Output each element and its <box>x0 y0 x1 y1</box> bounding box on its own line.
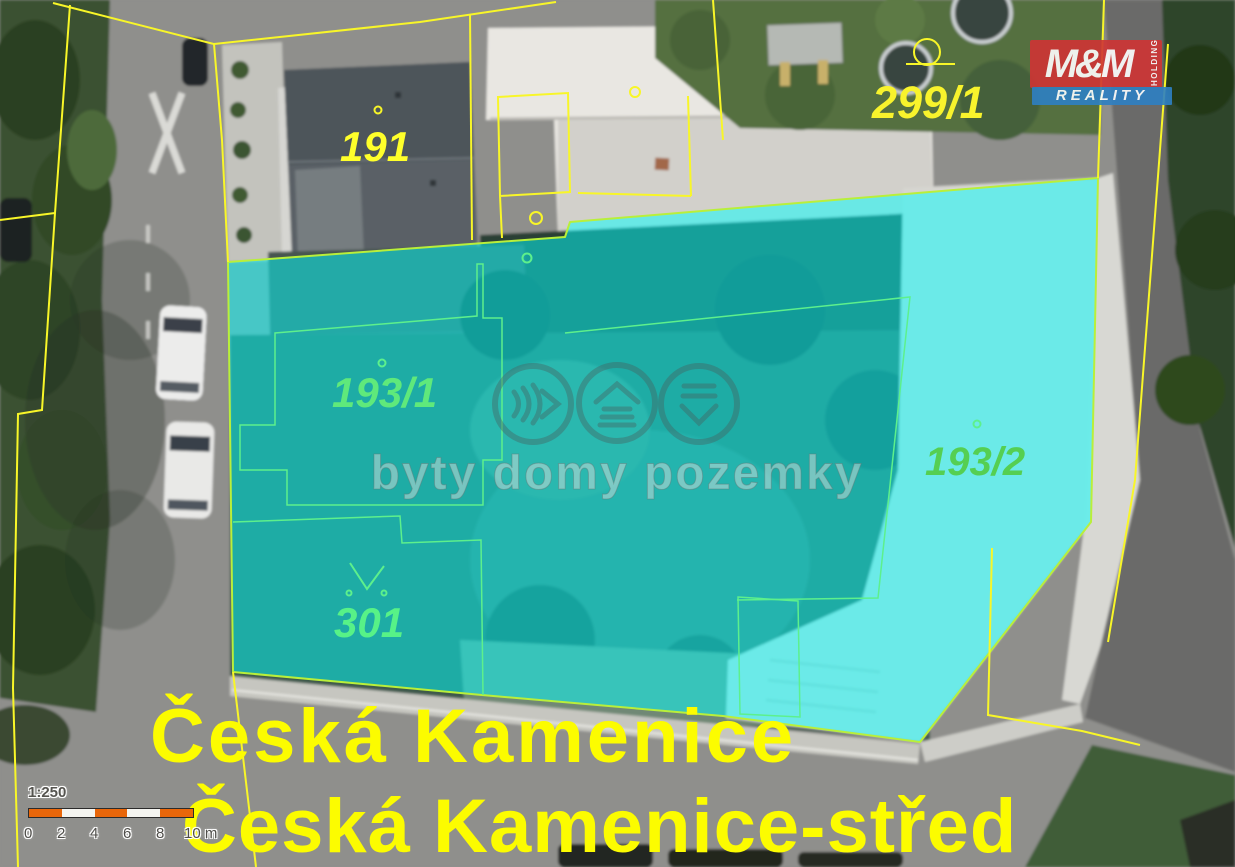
scale-tick: 10 m <box>184 825 217 842</box>
place-label-district: Česká Kamenice-střed <box>182 789 1017 865</box>
parked-car <box>155 305 207 401</box>
scale-bar: 1:250 0 2 4 6 8 10 m <box>8 784 218 856</box>
trampoline <box>953 0 1011 42</box>
mm-reality-logo: M&M HOLDING REALITY <box>1030 40 1174 108</box>
watermark-text: byty domy pozemky <box>371 446 864 501</box>
parcel-label-299-1: 299/1 <box>872 80 985 125</box>
garden-shed <box>767 23 842 66</box>
aerial-map: 191 299/1 193/1 193/2 301 byty domy poze… <box>0 0 1235 867</box>
logo-holding-text: HOLDING <box>1150 42 1159 86</box>
scale-tick: 2 <box>57 825 65 842</box>
scale-segment <box>29 809 62 817</box>
scale-ratio: 1:250 <box>28 784 66 801</box>
scale-segment <box>127 809 160 817</box>
scale-segment <box>95 809 128 817</box>
parked-car <box>0 198 32 262</box>
logo-red-box: M&M HOLDING <box>1030 40 1162 88</box>
parcel-label-191: 191 <box>340 126 410 168</box>
logo-reality-text: REALITY <box>1032 87 1172 105</box>
scale-tick: 8 <box>156 825 164 842</box>
place-label-municipality: Česká Kamenice <box>150 699 796 775</box>
parked-car <box>182 38 208 86</box>
scale-segment <box>160 809 193 817</box>
parked-car <box>163 421 214 519</box>
scale-tick: 6 <box>123 825 131 842</box>
logo-mm-text: M&M <box>1030 40 1146 88</box>
parcel-label-193-1: 193/1 <box>332 372 437 414</box>
scale-bar-segments <box>28 808 194 818</box>
parcel-label-193-2: 193/2 <box>925 442 1025 482</box>
scale-tick: 4 <box>90 825 98 842</box>
scale-segment <box>62 809 95 817</box>
parcel-label-301: 301 <box>334 602 404 644</box>
logo-blue-bar: REALITY <box>1032 87 1172 105</box>
scale-tick: 0 <box>24 825 32 842</box>
